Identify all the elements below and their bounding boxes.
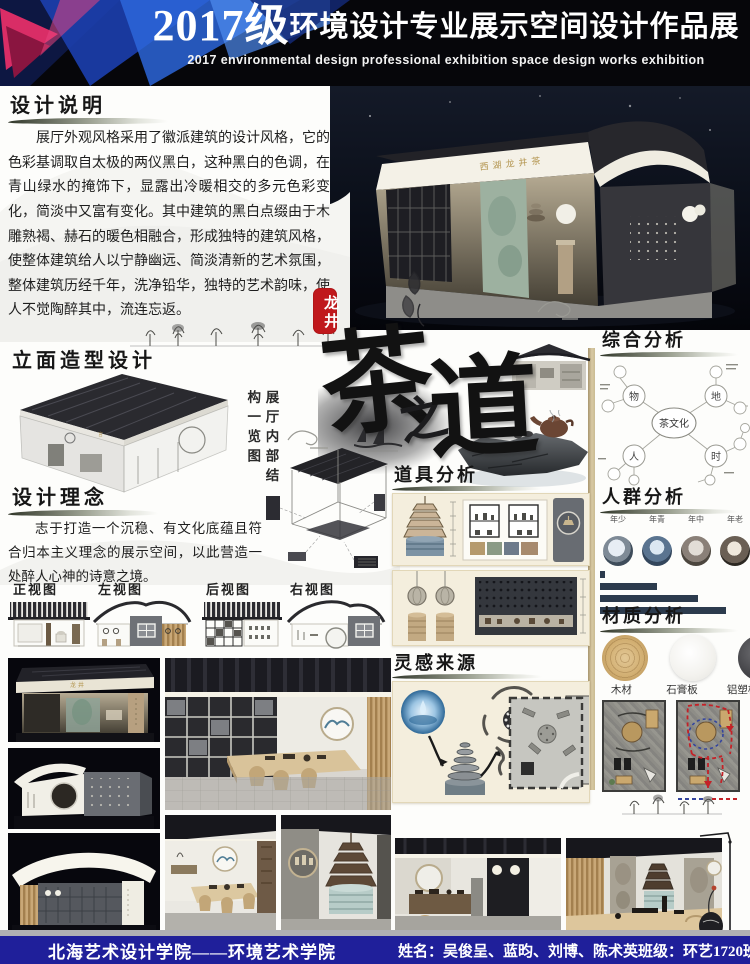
design-desc-body: 展厅外观风格采用了徽派建筑的设计风格，它的色彩基调取自太极的两仪黑白，这种黑白的… bbox=[8, 127, 330, 324]
elevation-right-drawing bbox=[284, 594, 386, 650]
material-heading: 材质分析 bbox=[602, 607, 686, 627]
inspiration-panel bbox=[392, 681, 590, 803]
floor-plan-left-content bbox=[604, 702, 664, 790]
render-exterior-2-art bbox=[8, 748, 160, 829]
crowd-item-youth: 青年 bbox=[640, 515, 673, 566]
svg-text:龙井: 龙井 bbox=[70, 681, 86, 689]
material-label-aluminum: 铝塑板 bbox=[723, 686, 750, 697]
bar-teen bbox=[600, 571, 605, 578]
facade-heading: 立面造型设计 bbox=[12, 350, 156, 372]
mindmap-branch-di: 地 bbox=[711, 390, 721, 403]
crowd-label-middle: 中年 bbox=[688, 515, 704, 533]
render-exterior-2 bbox=[8, 748, 160, 829]
crowd-label-youth: 青年 bbox=[649, 515, 665, 533]
props-panel-2 bbox=[392, 570, 590, 646]
elevation-label-front: 正视图 bbox=[13, 583, 58, 596]
props-sketch-2 bbox=[393, 571, 589, 645]
crowd-label-elder: 老年 bbox=[727, 515, 743, 533]
bar-youth bbox=[600, 583, 657, 590]
svg-text:言: 言 bbox=[98, 431, 103, 438]
elevation-label-left: 左视图 bbox=[98, 583, 143, 596]
brush-stroke bbox=[600, 352, 738, 357]
main-title: 2017级环境设计专业展示空间设计作品展 bbox=[150, 4, 742, 48]
render-interior-main bbox=[165, 658, 391, 810]
elevation-label-back: 后视图 bbox=[206, 583, 251, 596]
render-interior-display-art bbox=[281, 815, 391, 933]
header-titles: 2017级环境设计专业展示空间设计作品展 2017 environmental … bbox=[150, 4, 742, 67]
render-exterior-1: 龙井 bbox=[8, 658, 160, 742]
poster-root: 2017级环境设计专业展示空间设计作品展 2017 environmental … bbox=[0, 0, 750, 964]
avatar bbox=[681, 536, 711, 566]
concept-body: 志于打造一个沉稳、有文化底蕴且符合归本主义理念的展示空间，以此营造一处醉人心神的… bbox=[8, 517, 262, 588]
footer-bar: 北海艺术设计学院——环境艺术学院 姓名：吴俊呈、蓝昀、刘博、陈术英 班级：环艺1… bbox=[0, 936, 750, 964]
render-interior-counter bbox=[395, 838, 561, 933]
footer-school: 北海艺术设计学院——环境艺术学院 bbox=[48, 938, 336, 963]
inspiration-floor-plan bbox=[507, 696, 587, 792]
crowd-item-teen: 少年 bbox=[601, 515, 634, 566]
props-panel-1 bbox=[392, 493, 590, 566]
floor-plan-right-content bbox=[678, 702, 738, 790]
comprehensive-heading: 综合分析 bbox=[602, 331, 686, 351]
mindmap-diagram: 茶文化 物 地 人 时 bbox=[598, 360, 750, 486]
design-desc-heading: 设计说明 bbox=[10, 95, 106, 117]
longjing-seal: 龙井 bbox=[313, 288, 337, 334]
material-gypsum-swatch bbox=[670, 635, 716, 681]
render-interior-main-art bbox=[165, 658, 391, 810]
crowd-item-elder: 老年 bbox=[718, 515, 750, 566]
crowd-label-teen: 少年 bbox=[610, 515, 626, 533]
calligraphy-dao: 道 bbox=[424, 315, 542, 481]
material-wood-swatch bbox=[602, 635, 648, 681]
floor-plan-right-circulation bbox=[676, 700, 740, 792]
header-banner: 2017级环境设计专业展示空间设计作品展 2017 environmental … bbox=[0, 0, 750, 86]
render-interior-counter-art bbox=[395, 838, 561, 933]
tiered-stand-sketch bbox=[445, 743, 485, 795]
elevation-left-drawing bbox=[92, 594, 192, 650]
brush-stroke bbox=[8, 510, 158, 516]
render-exterior-3 bbox=[8, 833, 160, 933]
cloud-swirl bbox=[286, 424, 330, 450]
elevation-back-drawing bbox=[202, 600, 282, 648]
brush-stroke bbox=[8, 118, 168, 124]
render-exterior-1-art: 龙井 bbox=[8, 658, 160, 742]
material-label-wood: 木材 bbox=[602, 686, 641, 697]
brush-stroke bbox=[392, 674, 542, 679]
crowd-avatars: 少年 青年 中年 老年 bbox=[601, 515, 750, 566]
avatar bbox=[720, 536, 750, 566]
structure-note-vertical: 展厅内部结构一览图 bbox=[243, 390, 279, 505]
material-aluminum-swatch bbox=[738, 635, 750, 681]
render-interior-dining-art bbox=[165, 815, 276, 933]
mindmap-branch-ren: 人 bbox=[629, 451, 639, 463]
elevation-front-drawing bbox=[8, 600, 90, 648]
mindmap-branch-wu: 物 bbox=[629, 390, 639, 403]
brush-stroke bbox=[600, 509, 738, 514]
concept-heading: 设计理念 bbox=[12, 487, 108, 509]
material-label-gypsum: 石膏板 bbox=[663, 686, 702, 697]
props-sketch-1 bbox=[393, 494, 589, 565]
plan-legend bbox=[676, 795, 742, 803]
material-swatches bbox=[602, 635, 750, 681]
render-interior-display bbox=[281, 815, 391, 933]
material-labels: 木材 石膏板 铝塑板 bbox=[602, 686, 750, 697]
elevation-label-right: 右视图 bbox=[290, 583, 335, 596]
inspiration-heading: 灵感来源 bbox=[394, 654, 478, 674]
title-chinese: 环境设计专业展示空间设计作品展 bbox=[289, 11, 739, 43]
floor-plan-left bbox=[602, 700, 666, 792]
footer-names: 姓名：吴俊呈、蓝昀、刘博、陈术英 bbox=[398, 940, 638, 961]
exploded-structure-diagram bbox=[262, 438, 392, 580]
brush-stroke bbox=[600, 628, 738, 633]
crowd-item-middle: 中年 bbox=[679, 515, 712, 566]
title-english: 2017 environmental design professional e… bbox=[150, 54, 742, 67]
footer-class: 班级：环艺1720班 bbox=[638, 940, 750, 961]
render-interior-dining bbox=[165, 815, 276, 933]
avatar bbox=[642, 536, 672, 566]
cloud-swirl-2 bbox=[534, 294, 580, 322]
title-year: 2017级 bbox=[152, 1, 289, 50]
arrow-icon bbox=[481, 752, 497, 776]
mindmap-center-label: 茶文化 bbox=[659, 417, 689, 430]
facade-3d-model: 言 bbox=[8, 366, 238, 494]
crowd-heading: 人群分析 bbox=[602, 488, 686, 508]
avatar bbox=[603, 536, 633, 566]
mindmap-branch-shi: 时 bbox=[711, 451, 721, 463]
bar-middle bbox=[600, 595, 698, 602]
render-exterior-3-art bbox=[8, 833, 160, 933]
